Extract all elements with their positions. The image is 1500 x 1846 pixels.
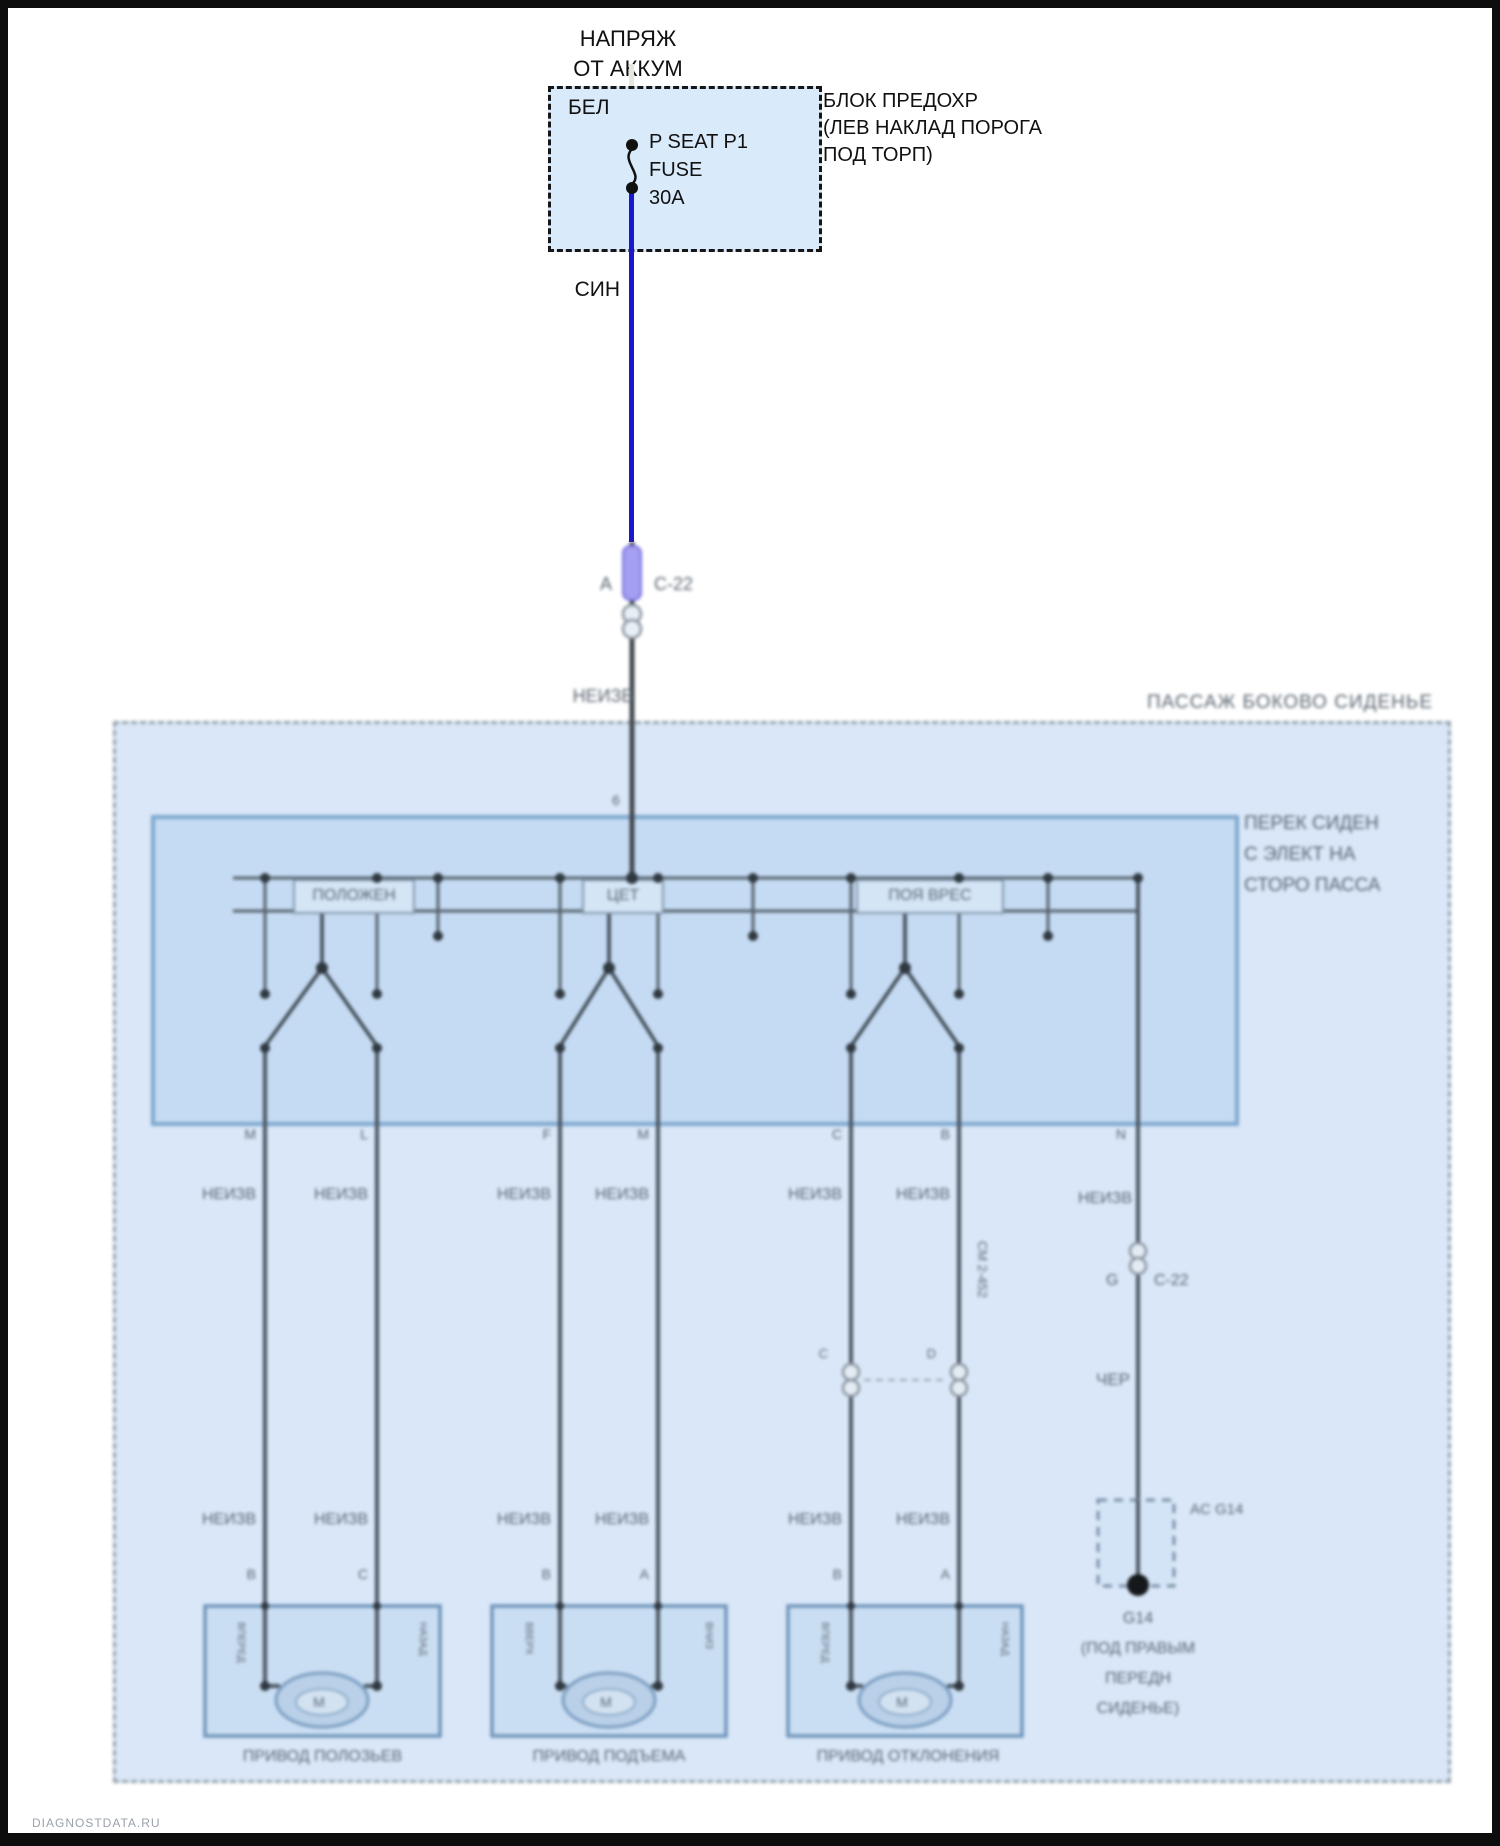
feed-connector-name: C-22 xyxy=(654,574,693,595)
wire2-color-upper: НЕИЗВ xyxy=(292,1186,368,1204)
switch-entry-pin: 6 xyxy=(612,792,620,808)
ground-point xyxy=(1127,1574,1149,1596)
wire3-color-lower: НЕИЗВ xyxy=(475,1511,551,1529)
pin-bottom-4: A xyxy=(627,1566,649,1582)
wire2-color-lower: НЕИЗВ xyxy=(292,1511,368,1529)
motor1-right-dir: НАЗАД xyxy=(417,1622,428,1656)
pin-top-2: L xyxy=(346,1126,368,1142)
pin-top-right: N xyxy=(1104,1126,1126,1142)
fuse-element xyxy=(629,149,636,184)
pin-top-3: F xyxy=(529,1126,551,1142)
wire7-color-upper: НЕИЗВ xyxy=(1056,1190,1132,1208)
watermark: DIAGNOSTDATA.RU xyxy=(32,1816,161,1830)
feed-connector-pin: A xyxy=(600,574,612,595)
wire3-color-upper: НЕИЗВ xyxy=(475,1186,551,1204)
feed-wire-color-after: НЕИЗВ xyxy=(553,686,653,707)
fuse-symbol-svg xyxy=(8,8,1500,268)
ground-location-1: (ПОД ПРАВЫМ xyxy=(1028,1640,1248,1658)
pin-bottom-1: B xyxy=(234,1566,256,1582)
pin-top-4: M xyxy=(627,1126,649,1142)
wire1-color-upper: НЕИЗВ xyxy=(180,1186,256,1204)
wire4-color-upper: НЕИЗВ xyxy=(573,1186,649,1204)
pin-bottom-2: C xyxy=(346,1566,368,1582)
motor2-label: ПРИВОД ПОДЪЕМА xyxy=(492,1748,726,1766)
wire7-color-lower: ЧЕР xyxy=(1060,1370,1130,1390)
wiring-diagram-page: НАПРЯЖ ОТ АККУМ БЕЛ P SEAT P1 FUSE 30A Б… xyxy=(0,0,1500,1846)
ground-connector-label: AC G14 xyxy=(1190,1501,1243,1518)
inline-connectors xyxy=(843,1364,967,1396)
wire5-color-upper: НЕИЗВ xyxy=(766,1186,842,1204)
junction-dots xyxy=(260,872,1143,1691)
motor2-right-dir: ВНИЗ xyxy=(703,1622,714,1649)
section-label-1: ПОЛОЖЕН xyxy=(294,887,414,905)
wire1-color-lower: НЕИЗВ xyxy=(180,1511,256,1529)
motor1-left-dir: ВПЕРЕД xyxy=(235,1622,246,1663)
wire5-color-lower: НЕИЗВ xyxy=(766,1511,842,1529)
wire4-color-lower: НЕИЗВ xyxy=(573,1511,649,1529)
section-label-2: ЦЕТ xyxy=(583,887,663,905)
wire6-color-lower: НЕИЗВ xyxy=(874,1511,950,1529)
section-label-3: ПОЯ ВРЕС xyxy=(857,887,1003,905)
ground-connector-pin: G xyxy=(1106,1272,1118,1290)
wiring-svg: M M M xyxy=(8,8,1500,1846)
svg-text:M: M xyxy=(600,1694,612,1710)
blurred-diagram-area: ПАССАЖ БОКОВО СИДЕНЬЕ ПЕРЕК СИДЕН С ЭЛЕК… xyxy=(8,8,1500,1846)
ground-connector-name: C-22 xyxy=(1154,1272,1189,1290)
inline-pin-right: D xyxy=(914,1346,936,1361)
switch-arms xyxy=(265,913,959,1046)
pin-bottom-6: A xyxy=(928,1566,950,1582)
pin-top-6: B xyxy=(928,1126,950,1142)
pin-bottom-3: B xyxy=(529,1566,551,1582)
output-wires xyxy=(265,878,1138,1686)
motor3-left-dir: ВПЕРЕД xyxy=(819,1622,830,1663)
motor2-left-dir: ВВЕРХ xyxy=(523,1622,534,1655)
motor3-right-dir: НАЗАД xyxy=(999,1622,1010,1656)
pin-top-5: C xyxy=(820,1126,842,1142)
wire6-color-upper: НЕИЗВ xyxy=(874,1186,950,1204)
pin-top-1: M xyxy=(234,1126,256,1142)
motor1-label: ПРИВОД ПОЛОЗЬЕВ xyxy=(205,1748,440,1766)
ground-location-3: СИДЕНЬЕ) xyxy=(1053,1700,1223,1718)
ground-location-2: ПЕРЕДН xyxy=(1058,1670,1218,1688)
feed-connector-c22 xyxy=(623,546,641,638)
vertical-note: СМ 2-452 xyxy=(975,1241,990,1298)
svg-text:M: M xyxy=(313,1694,325,1710)
pin-bottom-5: B xyxy=(820,1566,842,1582)
inline-pin-left: C xyxy=(806,1346,828,1361)
svg-text:M: M xyxy=(896,1694,908,1710)
ground-name: G14 xyxy=(1058,1610,1218,1628)
motor3-label: ПРИВОД ОТКЛОНЕНИЯ xyxy=(788,1748,1028,1766)
